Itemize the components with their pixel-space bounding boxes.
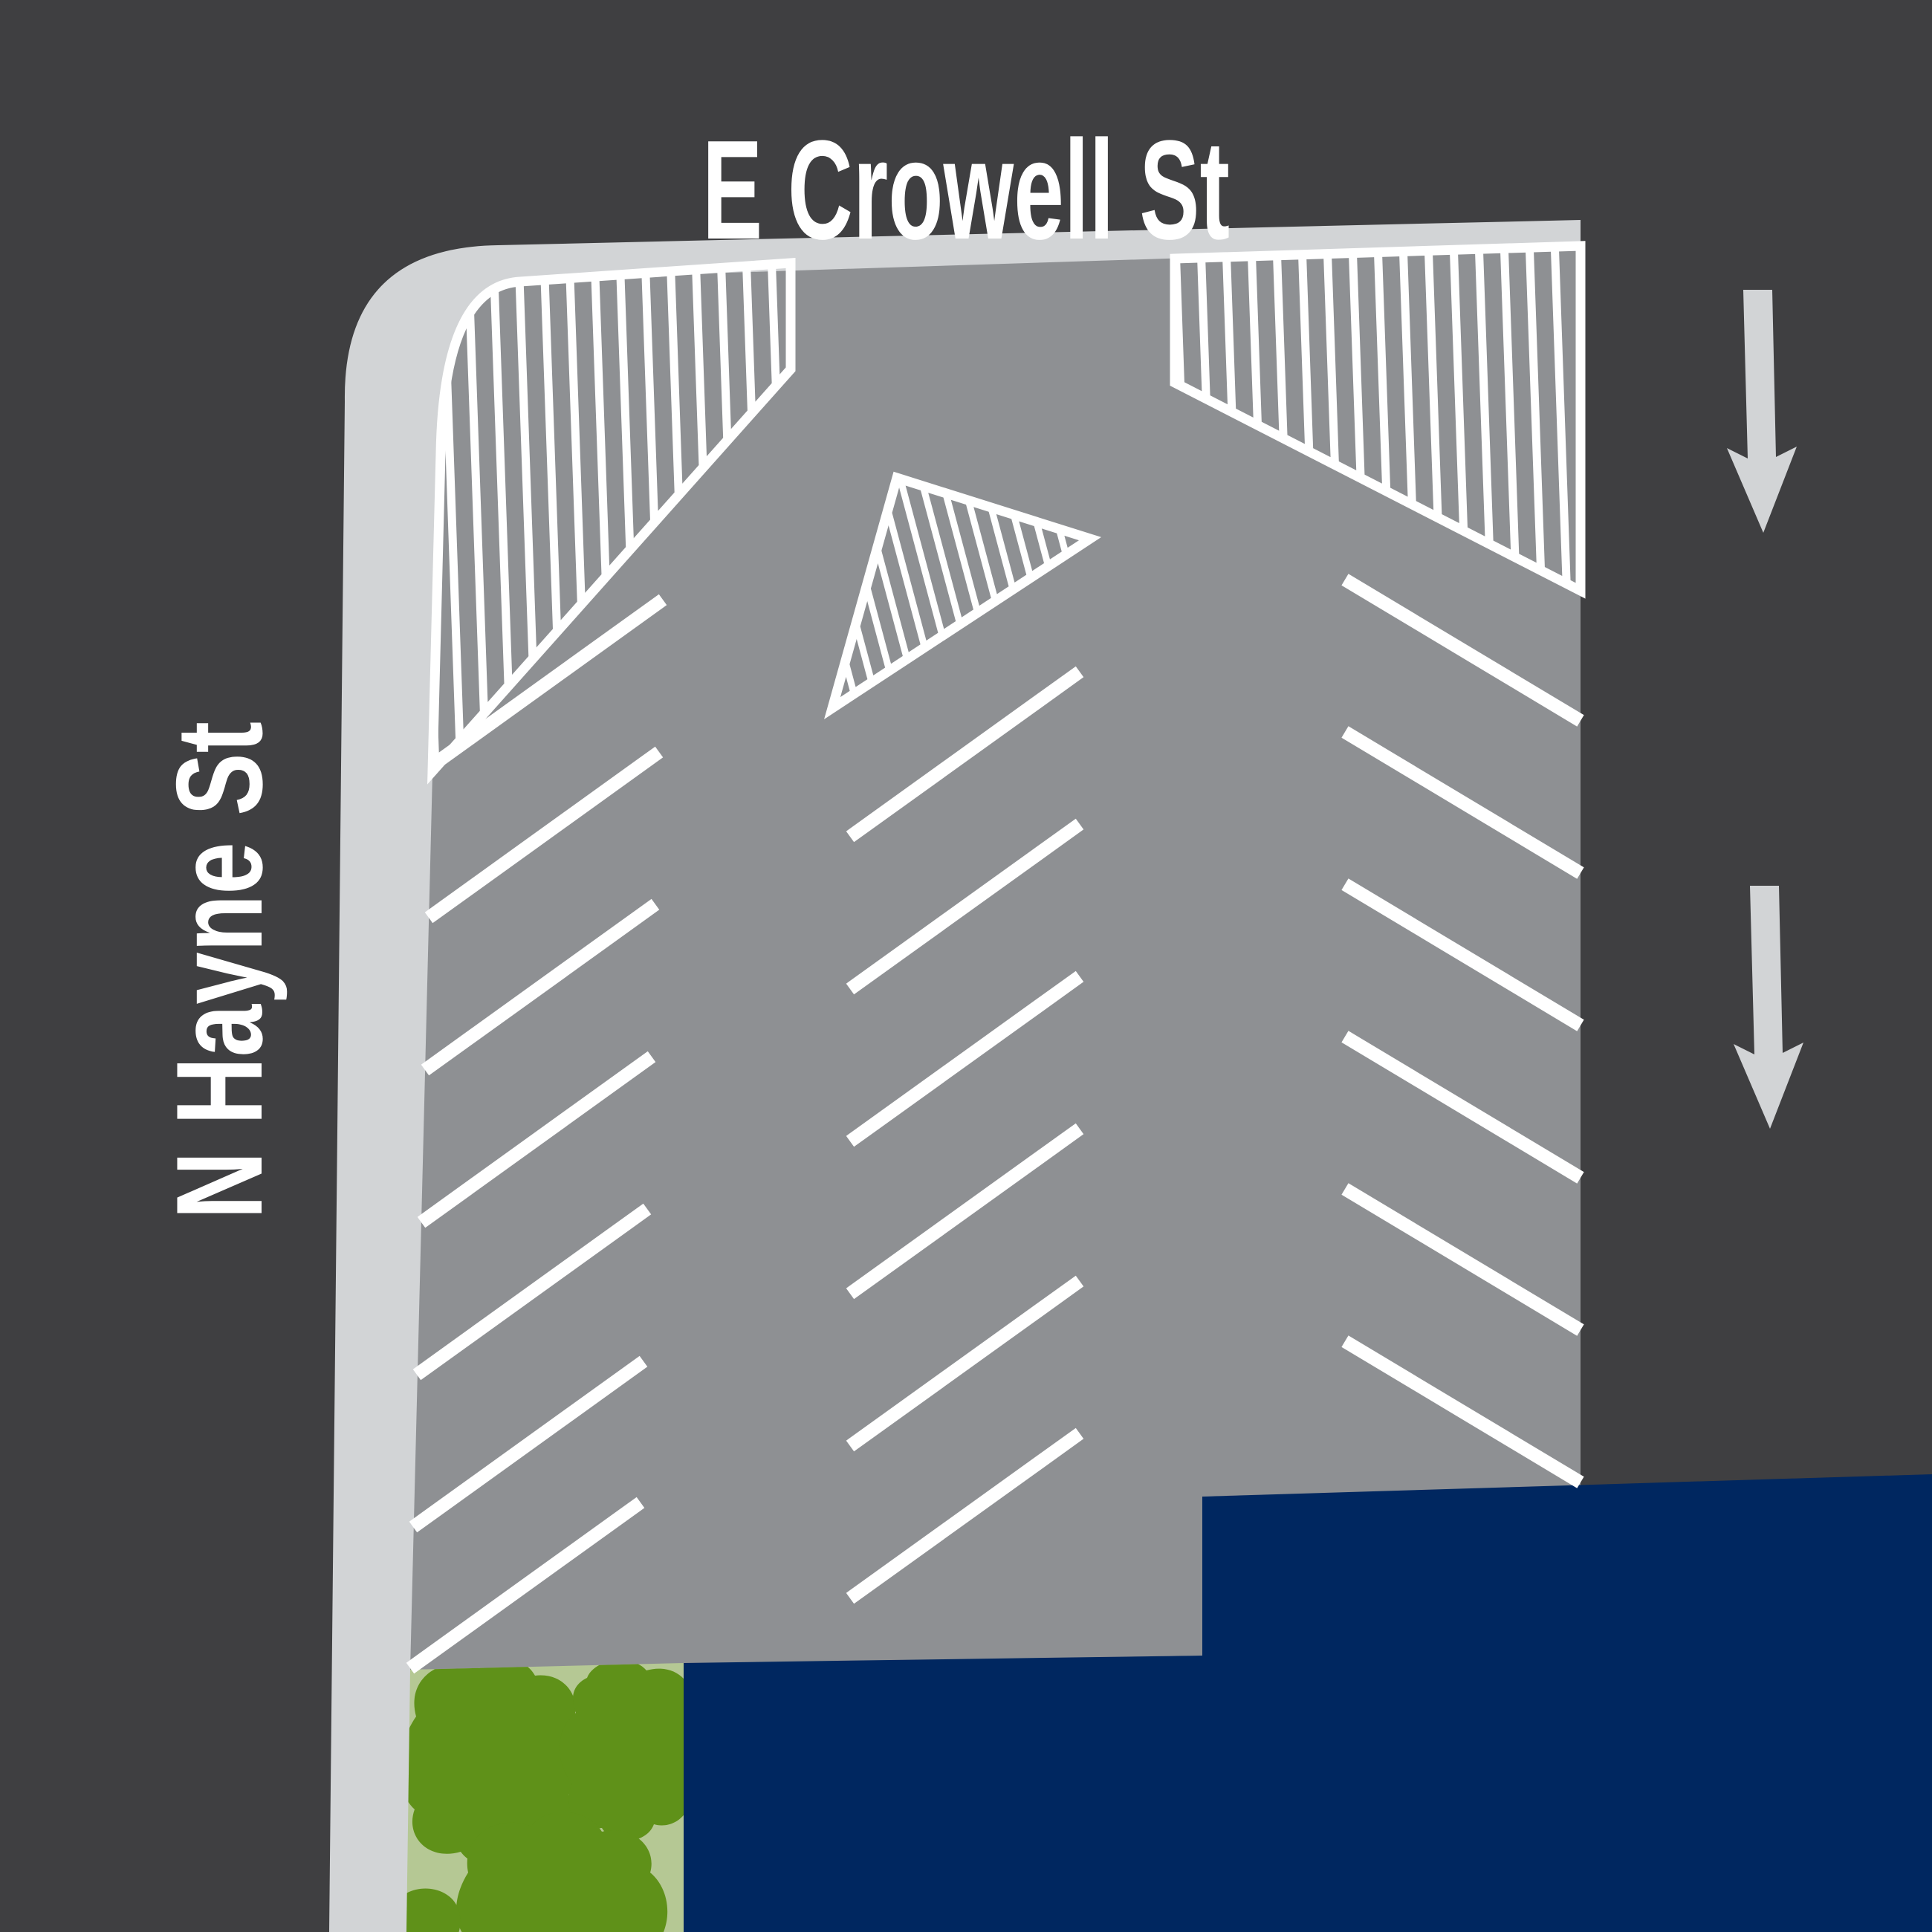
shrub-blob bbox=[560, 1660, 705, 1841]
street-label-n-hayne-st: N Hayne St bbox=[151, 722, 288, 1219]
parking-lot-map: E Crowell St N Hayne St bbox=[0, 0, 1932, 1932]
shrub-group bbox=[386, 1659, 705, 1932]
street-label-e-crowell-st: E Crowell St bbox=[702, 111, 1230, 269]
